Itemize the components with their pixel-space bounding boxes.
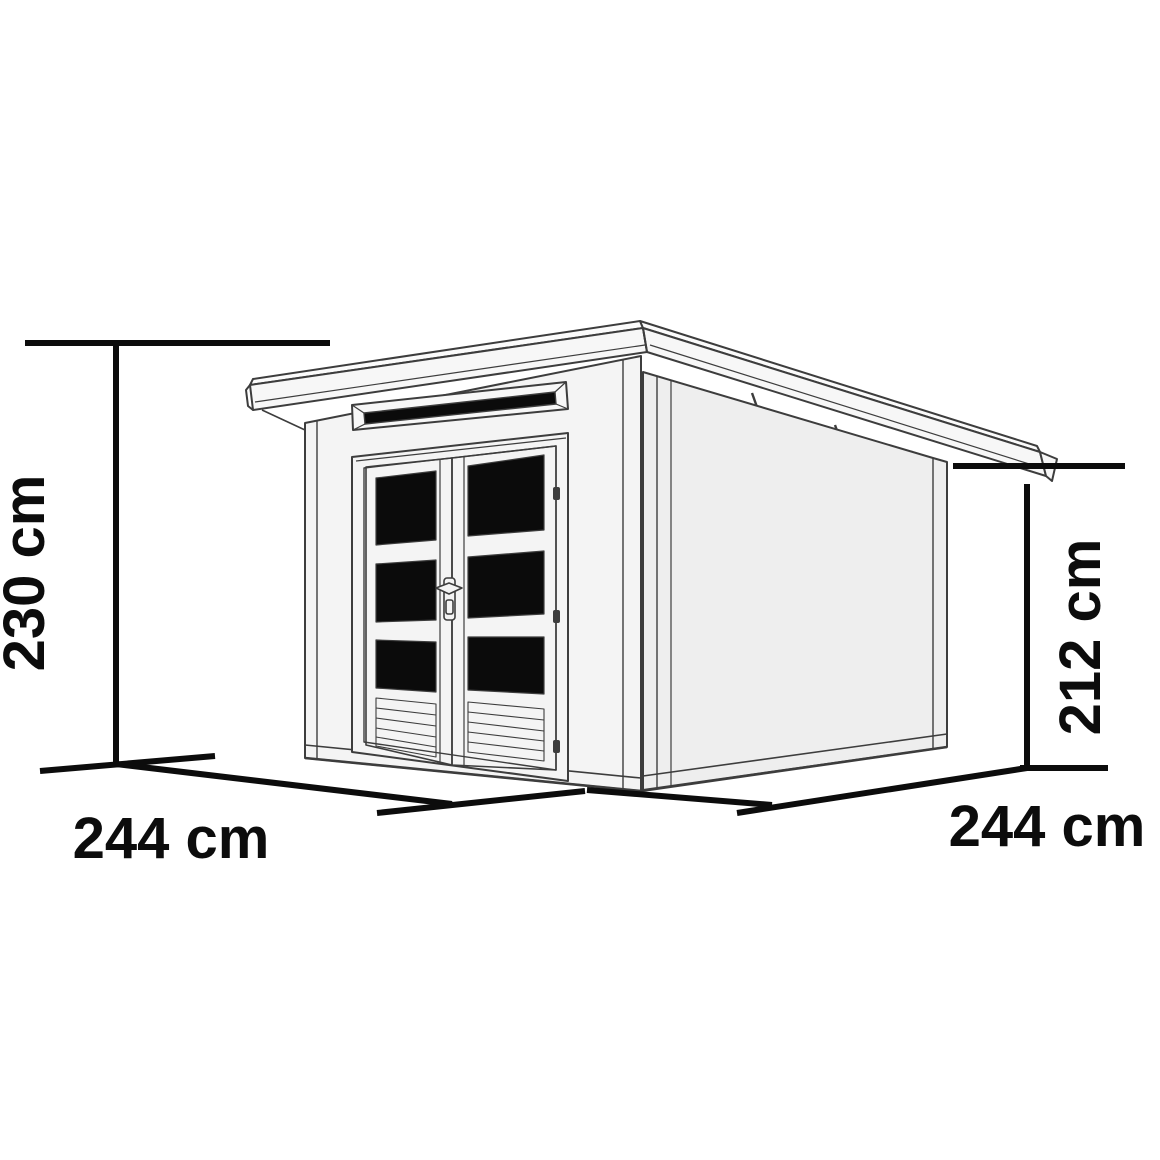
door-right-glass-1 bbox=[468, 455, 544, 536]
label-height-left: 230 cm bbox=[0, 475, 57, 672]
side-wall-panel bbox=[643, 372, 947, 790]
hinge-icon bbox=[553, 487, 560, 500]
door-right-glass-3 bbox=[468, 637, 544, 694]
door-right-glass-2 bbox=[468, 551, 544, 618]
side-wall bbox=[643, 372, 947, 790]
label-height-right: 212 cm bbox=[1048, 539, 1113, 736]
hinge-icon bbox=[553, 610, 560, 623]
door-left-glass-3 bbox=[376, 640, 436, 692]
roof-left-soffit bbox=[262, 410, 305, 430]
door-left-glass-2 bbox=[376, 560, 436, 622]
label-depth-side: 244 cm bbox=[949, 794, 1146, 859]
dimension-height-left bbox=[25, 343, 330, 771]
dim-line-width-front-a bbox=[116, 764, 452, 804]
label-width-front: 244 cm bbox=[73, 806, 270, 871]
hinge-icon bbox=[553, 740, 560, 753]
double-door bbox=[352, 433, 568, 781]
shed-drawing bbox=[246, 321, 1057, 791]
dim-line-width-front-b bbox=[377, 791, 585, 813]
diagram-canvas: 230 cm 212 cm 244 cm 244 cm bbox=[0, 0, 1160, 1160]
door-left-glass-1 bbox=[376, 471, 436, 545]
dim-line-depth-side-a bbox=[587, 790, 772, 805]
shed-dimension-diagram: 230 cm 212 cm 244 cm 244 cm bbox=[0, 0, 1160, 1160]
